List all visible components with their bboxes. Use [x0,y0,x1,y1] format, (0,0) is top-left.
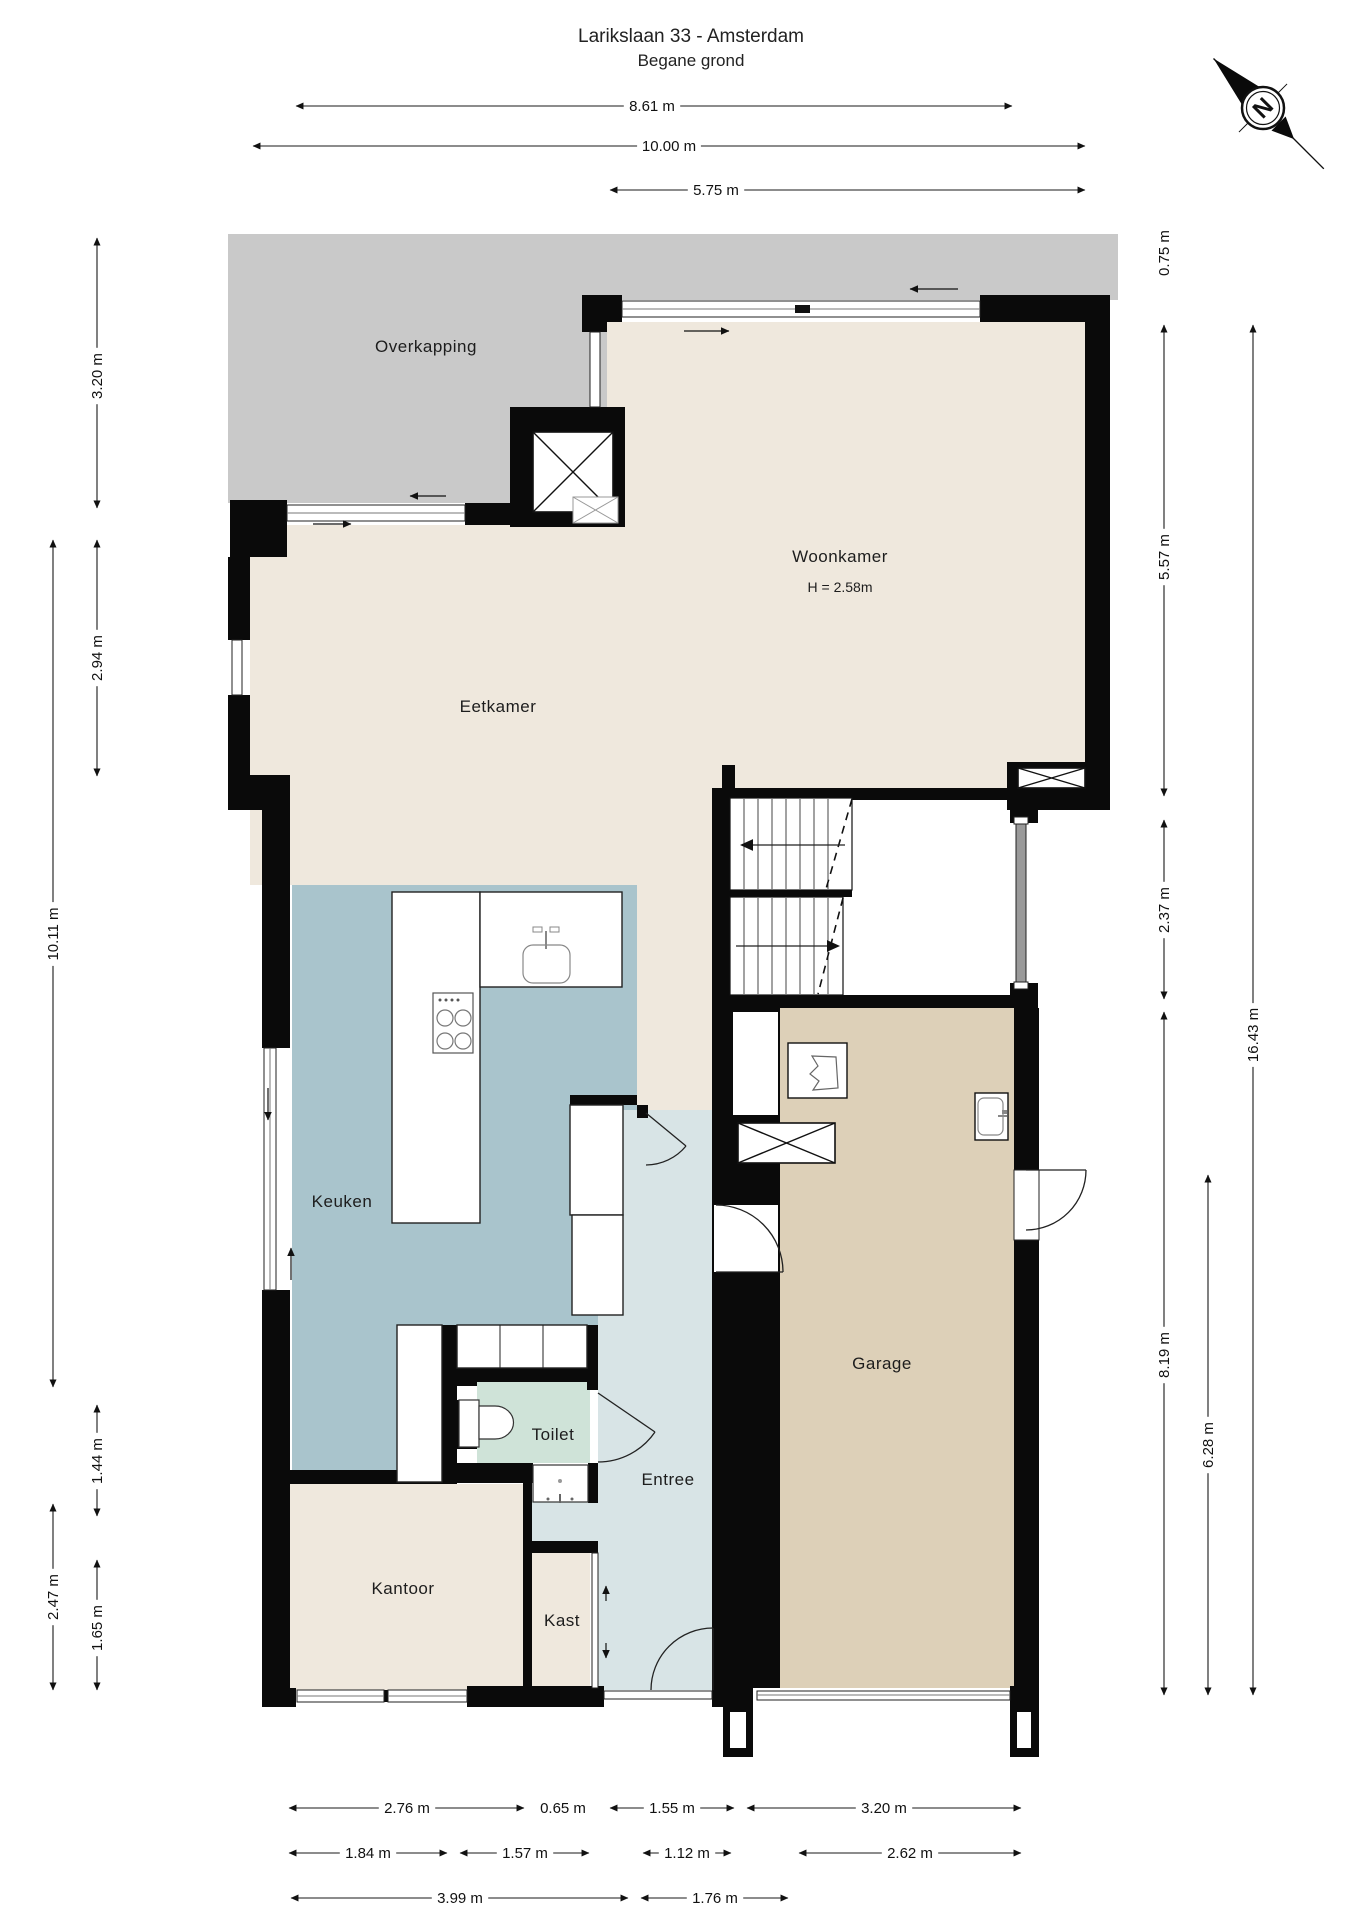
wall-segment [722,765,735,790]
boiler-icon [788,1043,847,1098]
svg-text:2.62 m: 2.62 m [887,1845,933,1862]
cabinet [570,1105,623,1215]
dimension-10.00-m: 10.00 m [253,136,1085,155]
window-junction [795,305,810,313]
stove-icon [433,993,473,1053]
window-kantoor-front [297,1690,467,1702]
svg-text:3.99 m: 3.99 m [437,1890,483,1907]
wall-segment [588,1463,598,1503]
dimension-6.28-m: 6.28 m [1198,1175,1217,1695]
pillar-slot [730,1712,746,1748]
window-stairwell-right [1014,817,1028,989]
svg-text:2.94 m: 2.94 m [89,635,106,681]
svg-text:2.37 m: 2.37 m [1156,887,1173,933]
wall-segment [1014,1240,1039,1688]
svg-text:1.84 m: 1.84 m [345,1845,391,1862]
cabinet [397,1325,442,1482]
wall-segment [1014,1008,1039,1170]
threshold-front-door [604,1691,712,1699]
window-garage-front [757,1691,1010,1700]
dimension-2.94-m: 2.94 m [87,540,106,776]
room-label-entree: Entree [641,1470,694,1489]
dimension-10.11-m: 10.11 m [43,540,62,1387]
dimension-1.76-m: 1.76 m [641,1888,788,1907]
wall-segment [262,1290,290,1690]
dimension-1.57-m: 1.57 m [460,1843,589,1862]
wall-segment [384,1690,388,1702]
wall-segment [452,1463,533,1483]
window-keuken-left [264,1048,276,1290]
room-label-woonkamer-height: H = 2.58m [808,579,873,595]
wall-segment [582,295,607,332]
cabinet-row [457,1325,587,1368]
window-eetkamer-left [232,640,242,695]
compass-icon: N [1189,34,1347,192]
vent-box-icon [738,1123,835,1163]
kitchen-island [392,892,480,1223]
dimension-1.84-m: 1.84 m [289,1843,447,1862]
cabinet [572,1215,623,1315]
wall-segment [523,1541,598,1553]
wall-segment [587,1325,598,1390]
wall-segment [262,1688,296,1707]
wall-segment [228,557,250,640]
stair-flight-upper [730,798,852,890]
svg-text:1.57 m: 1.57 m [502,1845,548,1862]
svg-text:3.20 m: 3.20 m [89,353,106,399]
svg-text:1.65 m: 1.65 m [89,1605,106,1651]
dimension-1.12-m: 1.12 m [643,1843,731,1862]
wall-segment [442,1368,598,1382]
wall-segment [712,1686,753,1707]
svg-text:5.75 m: 5.75 m [693,182,739,199]
dimension-8.61-m: 8.61 m [296,96,1012,115]
wall-segment [442,1325,457,1483]
svg-text:1.76 m: 1.76 m [692,1890,738,1907]
dimension-1.65-m: 1.65 m [87,1560,106,1690]
dimension-5.57-m: 5.57 m [1154,325,1173,796]
wall-segment [230,500,287,557]
dimension-2.62-m: 2.62 m [799,1843,1021,1862]
room-label-eetkamer: Eetkamer [460,697,537,716]
doorway-garage-entree [714,1205,778,1272]
svg-text:6.28 m: 6.28 m [1200,1422,1217,1468]
dimension-2.76-m: 2.76 m [289,1798,524,1817]
pillar-slot [1017,1712,1031,1748]
wall-segment [570,1095,637,1105]
room-label-toilet: Toilet [532,1425,575,1444]
dimension-1.44-m: 1.44 m [87,1405,106,1516]
wall-segment [607,295,622,322]
wall-niche [457,1386,477,1400]
shaft-box-small-icon [573,497,618,523]
svg-text:0.65 m: 0.65 m [540,1800,586,1817]
dimension-5.75-m: 5.75 m [610,180,1085,199]
dimension-1.55-m: 1.55 m [610,1798,734,1817]
sliding-door-kast [592,1553,598,1688]
plan-title: Larikslaan 33 - Amsterdam Begane grond [578,26,804,70]
dimension-3.20-m: 3.20 m [747,1798,1021,1817]
svg-text:10.11 m: 10.11 m [45,907,62,960]
wall-segment [228,695,250,775]
room-label-garage: Garage [852,1354,912,1373]
room-label-woonkamer: Woonkamer [792,547,888,566]
room-label-keuken: Keuken [312,1192,373,1211]
room-label-overkapping: Overkapping [375,337,477,356]
staircase [730,798,852,995]
dimension-16.43-m: 16.43 m [1243,325,1262,1695]
wall-segment [1010,1686,1039,1707]
dimension-0.75-m: 0.75 m [1154,225,1173,281]
room-label-kantoor: Kantoor [371,1579,434,1598]
wall-niche [457,1449,477,1463]
title-floor: Begane grond [638,51,745,70]
dimension-8.19-m: 8.19 m [1154,1012,1173,1695]
svg-text:5.57 m: 5.57 m [1156,534,1173,580]
garage-sink-icon [975,1093,1008,1140]
wall-segment [712,995,1014,1008]
wall-segment [465,503,512,525]
svg-text:10.00 m: 10.00 m [642,138,696,155]
window-overkapping [287,505,465,521]
wall-segment [228,775,290,810]
wall-segment [637,1105,648,1118]
svg-text:8.61 m: 8.61 m [629,98,675,115]
svg-text:1.55 m: 1.55 m [649,1800,695,1817]
garage-side-door [1014,1170,1086,1240]
dimension-3.20-m: 3.20 m [87,238,106,508]
window-woonkamer-top [622,301,980,317]
wall-segment [262,810,290,1048]
svg-text:2.47 m: 2.47 m [45,1574,62,1620]
wall-segment [523,1483,532,1690]
room-label-kast: Kast [544,1611,580,1630]
dimension-2.47-m: 2.47 m [43,1504,62,1690]
floor-eetkamer [250,525,607,885]
wall-closet [733,1012,778,1115]
wall-segment [1085,322,1110,810]
dimension-3.99-m: 3.99 m [291,1888,628,1907]
wall-segment [980,295,1110,322]
kitchen-counter [480,892,622,987]
dimension-2.37-m: 2.37 m [1154,820,1173,999]
svg-text:3.20 m: 3.20 m [861,1800,907,1817]
wall-segment [467,1686,604,1707]
svg-text:1.12 m: 1.12 m [664,1845,710,1862]
wall-segment [712,788,730,1008]
svg-text:0.75 m: 0.75 m [1156,230,1173,276]
title-address: Larikslaan 33 - Amsterdam [578,26,804,47]
floor-entree-nook [532,1500,598,1541]
svg-text:16.43 m: 16.43 m [1245,1008,1262,1062]
window-nw-vertical [590,332,600,407]
svg-text:2.76 m: 2.76 m [384,1800,430,1817]
floorplan-canvas: Larikslaan 33 - Amsterdam Begane grond N… [0,0,1358,1920]
stair-divider [730,890,852,897]
floorplan-page: Larikslaan 33 - Amsterdam Begane grond N… [0,0,1358,1920]
dimension-0.65-m: 0.65 m [535,1798,591,1817]
hand-basin-icon [533,1465,588,1503]
vent-box-icon [1018,768,1085,788]
svg-text:8.19 m: 8.19 m [1156,1332,1173,1378]
svg-text:1.44 m: 1.44 m [89,1438,106,1484]
